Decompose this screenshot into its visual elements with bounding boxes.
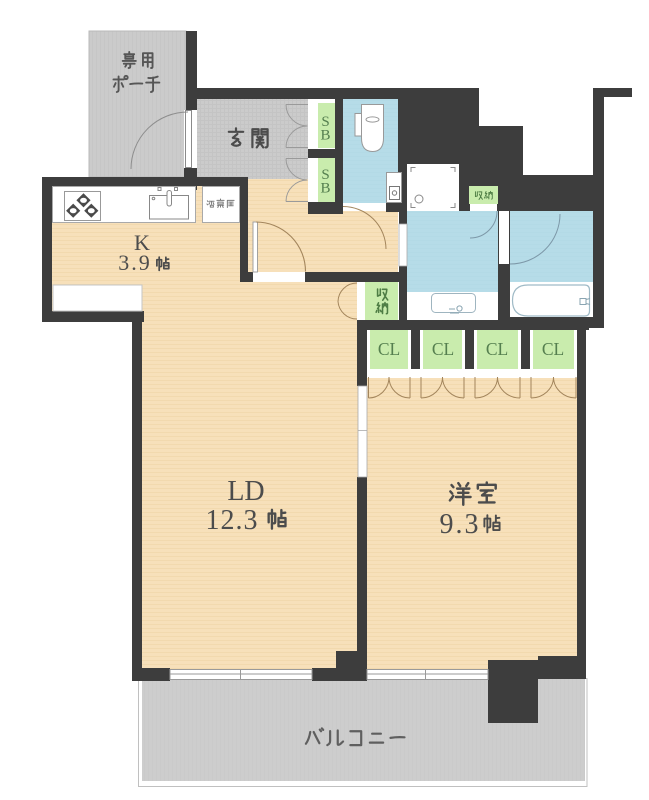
svg-text:CL: CL [378,339,400,359]
svg-text:CL: CL [542,339,564,359]
svg-text:LD: LD [227,476,264,507]
svg-text:3.9: 3.9 [118,250,152,275]
svg-text:12.3: 12.3 [206,505,259,536]
svg-text:CL: CL [432,339,454,359]
svg-text:9.3: 9.3 [440,509,481,540]
svg-text:CL: CL [486,339,508,359]
svg-text:B: B [320,181,330,197]
svg-text:B: B [320,128,330,144]
